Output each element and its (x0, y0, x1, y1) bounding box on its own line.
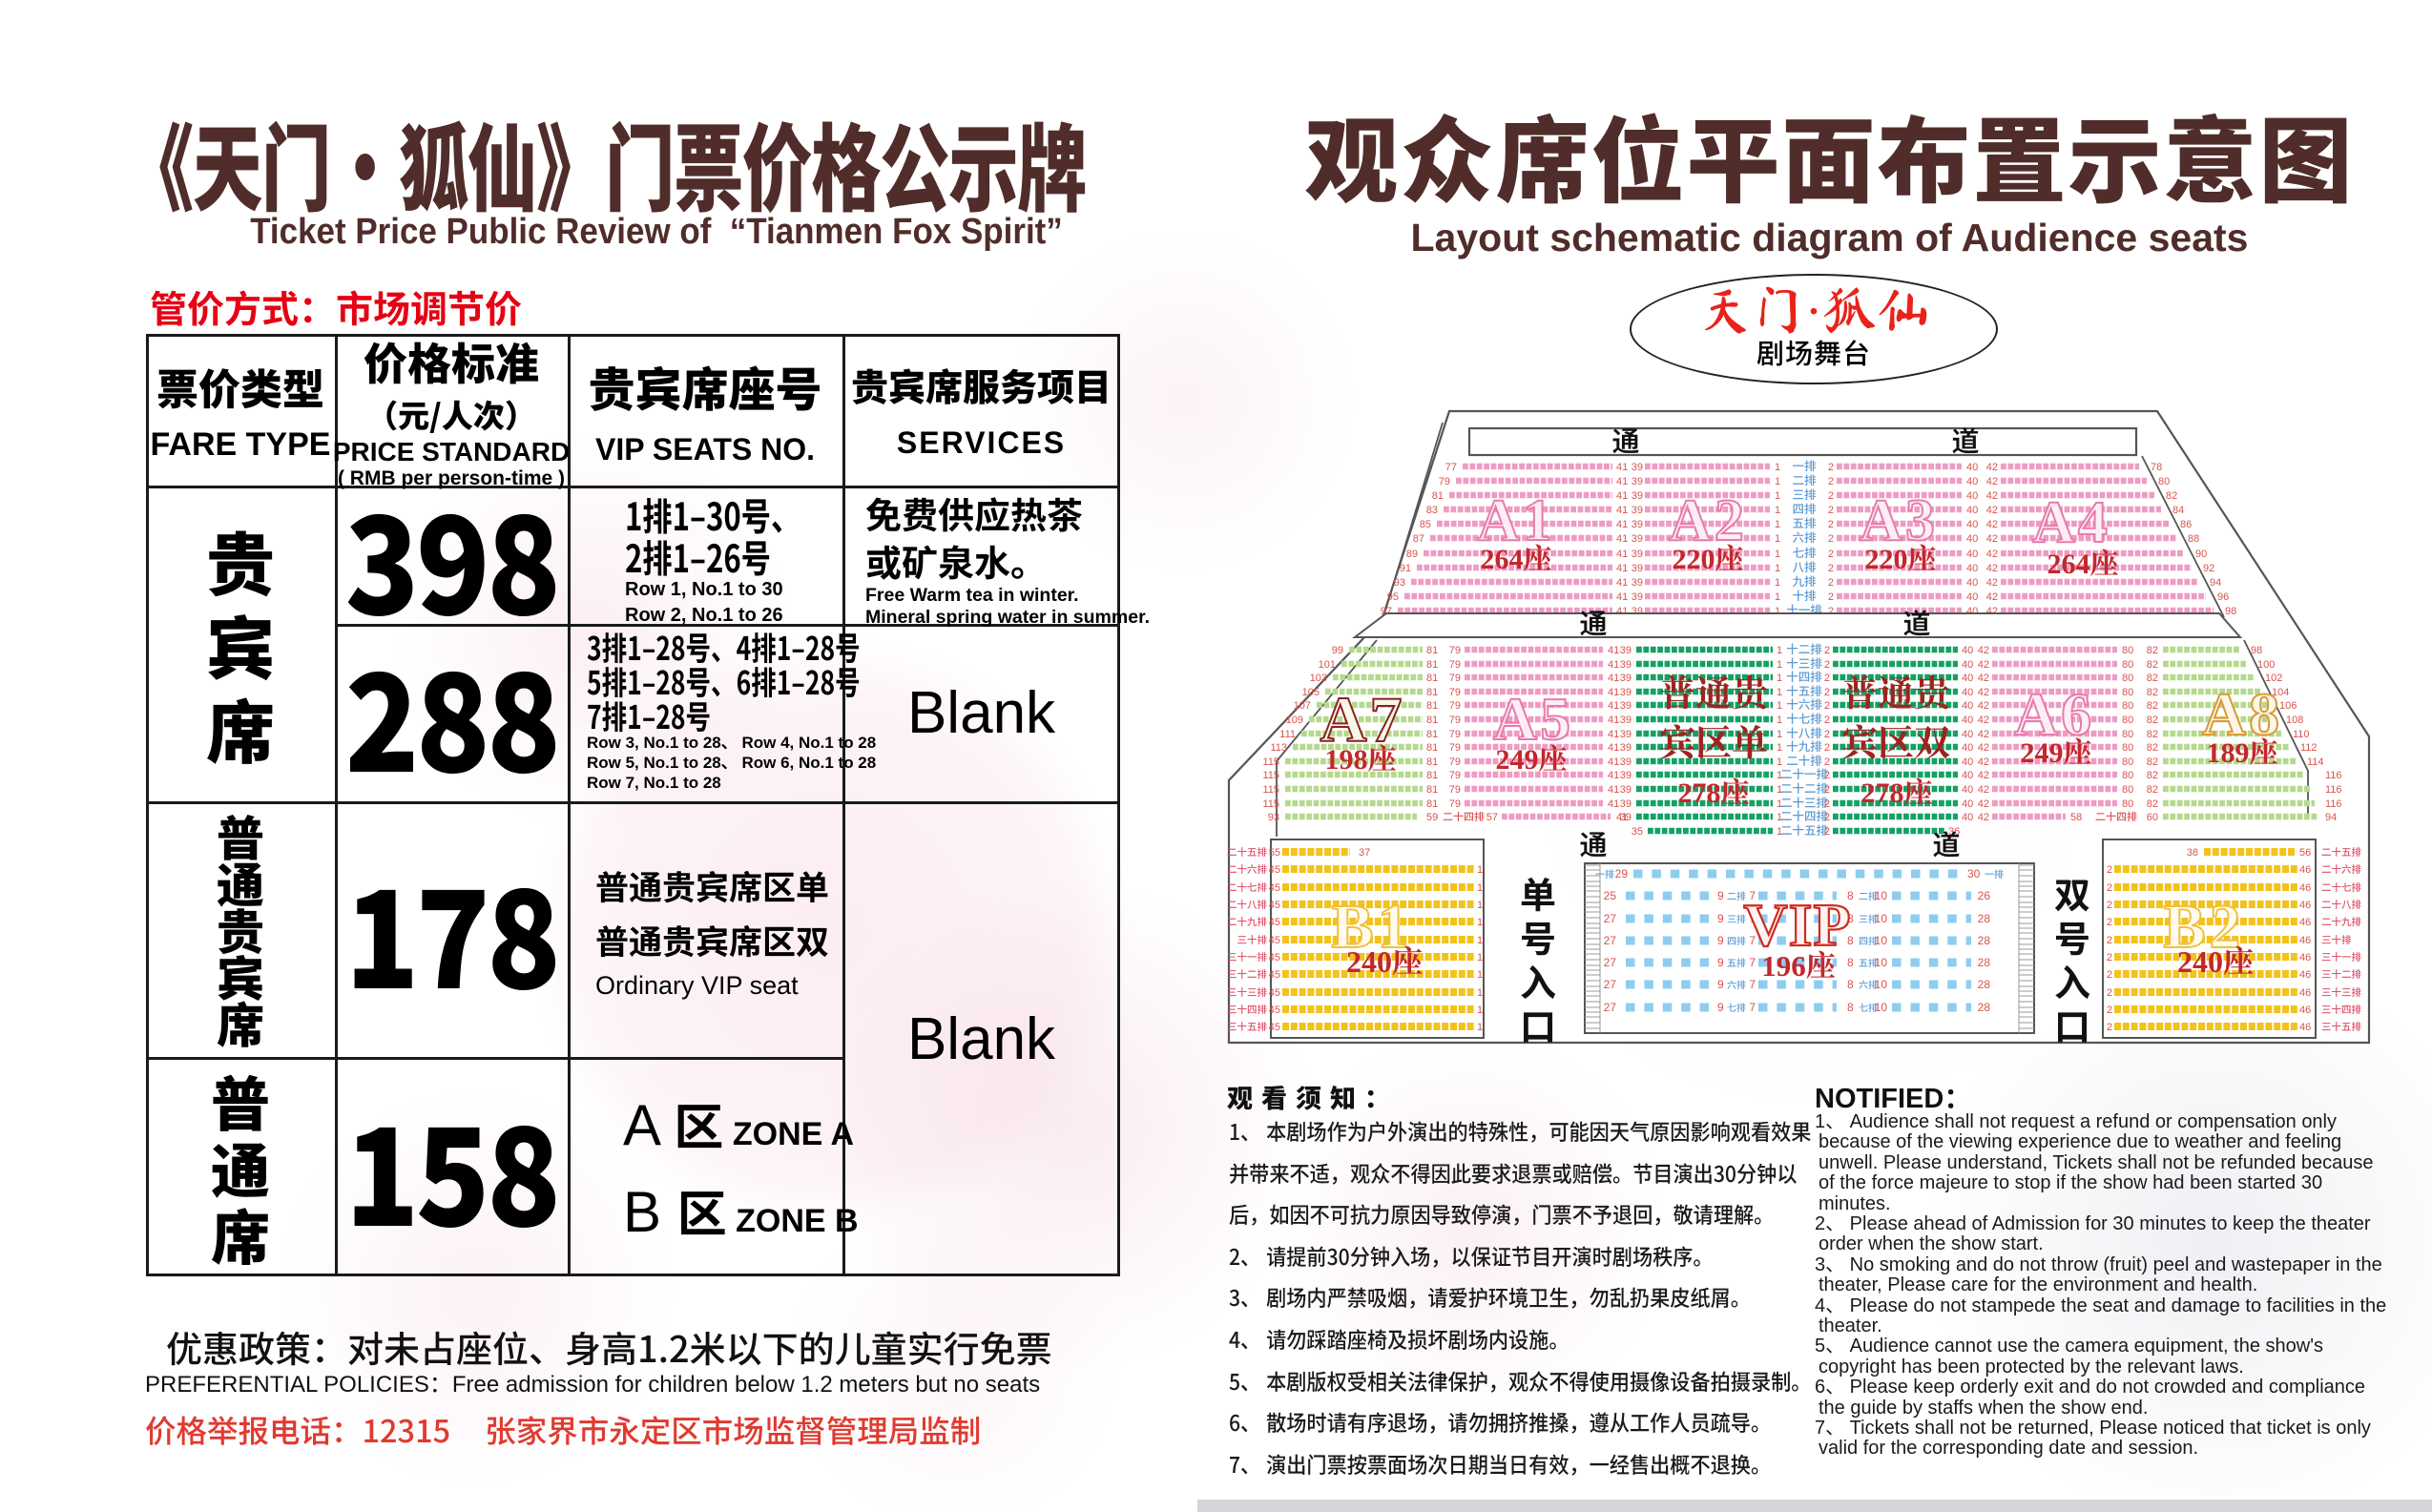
svg-text:99: 99 (1332, 645, 1343, 656)
svg-text:45: 45 (1269, 864, 1280, 876)
svg-text:1: 1 (1775, 533, 1780, 545)
svg-text:79: 79 (1449, 770, 1461, 781)
svg-text:77: 77 (1445, 462, 1457, 473)
svg-text:82: 82 (2147, 700, 2158, 712)
svg-text:42: 42 (1978, 812, 1989, 823)
svg-text:一排: 一排 (1595, 866, 1614, 880)
svg-text:2: 2 (2107, 952, 2112, 963)
svg-text:1: 1 (1477, 969, 1483, 981)
svg-text:46: 46 (2299, 969, 2311, 981)
svg-text:2: 2 (2107, 917, 2112, 928)
svg-text:42: 42 (1986, 563, 1998, 574)
svg-text:109: 109 (1286, 715, 1303, 726)
svg-text:82: 82 (2147, 770, 2158, 781)
svg-text:39: 39 (1632, 476, 1643, 487)
svg-text:10: 10 (1875, 978, 1888, 991)
svg-text:111: 111 (1279, 729, 1296, 740)
svg-text:10: 10 (1875, 934, 1888, 947)
svg-text:39: 39 (1632, 533, 1643, 545)
svg-text:79: 79 (1449, 673, 1461, 684)
svg-text:2: 2 (1824, 700, 1830, 712)
svg-text:1: 1 (1477, 917, 1483, 928)
svg-text:240座: 240座 (2177, 944, 2254, 979)
svg-text:42: 42 (1986, 490, 1998, 502)
svg-text:39: 39 (1620, 715, 1632, 726)
svg-text:42: 42 (1986, 577, 1998, 589)
svg-text:28: 28 (1978, 934, 1991, 947)
svg-text:1: 1 (1777, 700, 1782, 712)
svg-text:81: 81 (1432, 490, 1444, 502)
svg-text:三十排: 三十排 (1237, 933, 1268, 947)
svg-text:82: 82 (2147, 742, 2158, 754)
svg-text:42: 42 (1978, 798, 1989, 810)
svg-text:1: 1 (1775, 591, 1780, 603)
svg-text:二十八排: 二十八排 (1227, 898, 1267, 912)
svg-text:81: 81 (1426, 798, 1438, 810)
svg-text:80: 80 (2122, 659, 2133, 671)
svg-text:2: 2 (2107, 1022, 2112, 1033)
svg-text:115: 115 (1262, 798, 1279, 810)
svg-text:39: 39 (1632, 462, 1643, 473)
svg-text:45: 45 (1269, 917, 1280, 928)
svg-text:1: 1 (1777, 742, 1782, 754)
svg-text:39: 39 (1620, 756, 1632, 768)
svg-text:82: 82 (2147, 715, 2158, 726)
svg-text:45: 45 (1269, 935, 1280, 946)
svg-text:41: 41 (1608, 729, 1619, 740)
svg-text:46: 46 (2299, 1022, 2311, 1033)
svg-text:40: 40 (1962, 687, 1973, 698)
svg-text:1: 1 (1477, 987, 1483, 999)
svg-text:三十排: 三十排 (2321, 933, 2352, 947)
svg-text:46: 46 (2299, 987, 2311, 999)
svg-text:83: 83 (1426, 505, 1438, 516)
svg-text:82: 82 (2147, 729, 2158, 740)
svg-text:42: 42 (1978, 673, 1989, 684)
svg-text:2: 2 (1824, 687, 1830, 698)
svg-text:249座: 249座 (2021, 737, 2092, 769)
svg-text:39: 39 (1620, 700, 1632, 712)
svg-text:100: 100 (2257, 659, 2275, 671)
svg-text:42: 42 (1986, 591, 1998, 603)
svg-text:40: 40 (1966, 533, 1978, 545)
svg-text:1: 1 (1477, 900, 1483, 911)
svg-text:41: 41 (1608, 659, 1619, 671)
svg-text:220座: 220座 (1673, 544, 1744, 575)
svg-text:249座: 249座 (1496, 744, 1568, 776)
svg-text:41: 41 (1616, 519, 1628, 530)
svg-text:40: 40 (1962, 756, 1973, 768)
svg-text:通: 通 (1579, 823, 1607, 863)
svg-text:39: 39 (1620, 798, 1632, 810)
svg-text:89: 89 (1406, 549, 1418, 560)
svg-text:56: 56 (2299, 847, 2311, 859)
svg-text:三十一排: 三十一排 (1227, 950, 1267, 964)
svg-text:1: 1 (1777, 673, 1782, 684)
svg-text:45: 45 (1269, 987, 1280, 999)
svg-text:198座: 198座 (1325, 744, 1397, 776)
svg-text:8: 8 (1847, 1001, 1854, 1014)
svg-text:41: 41 (1608, 673, 1619, 684)
svg-text:二十八排: 二十八排 (2321, 898, 2361, 912)
svg-text:81: 81 (1426, 756, 1438, 768)
svg-text:79: 79 (1449, 700, 1461, 712)
svg-text:40: 40 (1966, 563, 1978, 574)
svg-text:2: 2 (1828, 476, 1834, 487)
svg-text:101: 101 (1319, 659, 1336, 671)
svg-text:80: 80 (2122, 673, 2133, 684)
svg-text:80: 80 (2158, 476, 2170, 487)
svg-text:79: 79 (1449, 659, 1461, 671)
svg-text:40: 40 (1966, 462, 1978, 473)
svg-text:宾区双: 宾区双 (1841, 714, 1950, 766)
svg-text:278座: 278座 (1678, 777, 1750, 809)
svg-text:27: 27 (1604, 978, 1617, 991)
svg-text:80: 80 (2122, 742, 2133, 754)
svg-text:41: 41 (1608, 687, 1619, 698)
svg-text:112: 112 (2300, 742, 2318, 754)
svg-text:六排: 六排 (1727, 977, 1746, 991)
svg-text:107: 107 (1294, 700, 1311, 712)
svg-text:1: 1 (1477, 864, 1483, 876)
svg-text:道: 道 (1902, 602, 1930, 642)
svg-text:79: 79 (1449, 687, 1461, 698)
svg-text:1: 1 (1775, 505, 1780, 516)
svg-text:1: 1 (1775, 519, 1780, 530)
svg-text:三十三排: 三十三排 (1227, 985, 1267, 1000)
svg-text:39: 39 (1620, 812, 1632, 823)
svg-text:9: 9 (1717, 1001, 1724, 1014)
svg-text:81: 81 (1426, 700, 1438, 712)
svg-text:42: 42 (1978, 687, 1989, 698)
svg-text:2: 2 (2107, 987, 2112, 999)
svg-text:46: 46 (2299, 864, 2311, 876)
svg-text:40: 40 (1962, 673, 1973, 684)
svg-text:39: 39 (1632, 591, 1643, 603)
svg-text:86: 86 (2180, 519, 2192, 530)
svg-text:28: 28 (1978, 978, 1991, 991)
svg-text:二十九排: 二十九排 (2321, 915, 2361, 929)
svg-text:88: 88 (2188, 533, 2199, 545)
svg-text:1: 1 (1775, 462, 1780, 473)
svg-text:46: 46 (2299, 917, 2311, 928)
svg-text:27: 27 (1604, 1001, 1617, 1014)
svg-text:二十六排: 二十六排 (2321, 862, 2361, 877)
svg-text:45: 45 (1269, 952, 1280, 963)
svg-text:9: 9 (1717, 912, 1724, 925)
svg-text:A4: A4 (2032, 490, 2110, 555)
svg-text:40: 40 (1962, 798, 1973, 810)
svg-text:30: 30 (1967, 867, 1981, 880)
svg-text:93: 93 (1394, 577, 1405, 589)
svg-text:82: 82 (2147, 798, 2158, 810)
svg-text:2: 2 (1828, 577, 1834, 589)
svg-text:2: 2 (1828, 549, 1834, 560)
svg-text:三十二排: 三十二排 (1227, 967, 1267, 982)
svg-text:41: 41 (1608, 645, 1619, 656)
svg-text:9: 9 (1717, 978, 1724, 991)
svg-text:189座: 189座 (2207, 737, 2278, 769)
svg-text:9: 9 (1717, 956, 1724, 969)
svg-text:87: 87 (1413, 533, 1424, 545)
svg-text:40: 40 (1962, 729, 1973, 740)
svg-text:27: 27 (1604, 934, 1617, 947)
svg-text:40: 40 (1966, 591, 1978, 603)
svg-text:39: 39 (1620, 659, 1632, 671)
svg-text:10: 10 (1875, 912, 1888, 925)
svg-text:79: 79 (1449, 784, 1461, 796)
svg-text:2: 2 (1824, 812, 1830, 823)
svg-text:通: 通 (1611, 420, 1639, 460)
svg-text:98: 98 (2251, 645, 2262, 656)
svg-text:40: 40 (1966, 549, 1978, 560)
svg-text:41: 41 (1608, 798, 1619, 810)
svg-text:42: 42 (1986, 549, 1998, 560)
svg-text:42: 42 (1978, 659, 1989, 671)
svg-text:40: 40 (1962, 812, 1973, 823)
svg-text:一排: 一排 (1985, 866, 2004, 880)
svg-text:46: 46 (2299, 900, 2311, 911)
svg-text:39: 39 (1632, 519, 1643, 530)
svg-text:42: 42 (1978, 756, 1989, 768)
svg-text:2: 2 (1828, 505, 1834, 516)
svg-text:二十五排: 二十五排 (1780, 820, 1829, 839)
svg-text:2: 2 (1824, 673, 1830, 684)
svg-text:110: 110 (2293, 729, 2310, 740)
svg-text:41: 41 (1616, 505, 1628, 516)
svg-text:81: 81 (1426, 729, 1438, 740)
svg-text:41: 41 (1616, 577, 1628, 589)
svg-text:2: 2 (1824, 770, 1830, 781)
svg-text:41: 41 (1608, 742, 1619, 754)
svg-text:25: 25 (1604, 889, 1617, 902)
svg-text:81: 81 (1426, 715, 1438, 726)
svg-text:口: 口 (1520, 998, 1556, 1050)
svg-text:10: 10 (1875, 956, 1888, 969)
svg-text:41: 41 (1608, 756, 1619, 768)
svg-text:41: 41 (1616, 549, 1628, 560)
svg-text:98: 98 (2225, 606, 2236, 617)
svg-text:二十四排: 二十四排 (2095, 809, 2137, 824)
svg-text:82: 82 (2147, 673, 2158, 684)
svg-text:115: 115 (1262, 784, 1279, 796)
svg-text:39: 39 (1632, 577, 1643, 589)
svg-text:39: 39 (1632, 490, 1643, 502)
svg-text:46: 46 (2299, 1005, 2311, 1016)
svg-text:95: 95 (1387, 591, 1399, 603)
svg-text:口: 口 (2054, 998, 2090, 1050)
svg-text:41: 41 (1608, 700, 1619, 712)
svg-text:40: 40 (1962, 659, 1973, 671)
svg-text:93: 93 (1268, 812, 1279, 823)
svg-text:42: 42 (1986, 462, 1998, 473)
svg-text:42: 42 (1986, 505, 1998, 516)
svg-text:1: 1 (1777, 729, 1782, 740)
svg-text:82: 82 (2147, 756, 2158, 768)
svg-text:42: 42 (1986, 519, 1998, 530)
svg-text:40: 40 (1966, 505, 1978, 516)
svg-text:264座: 264座 (2047, 549, 2119, 580)
svg-text:40: 40 (1962, 645, 1973, 656)
svg-text:2: 2 (2107, 864, 2112, 876)
svg-text:1: 1 (1775, 577, 1780, 589)
svg-text:45: 45 (1269, 900, 1280, 911)
svg-text:39: 39 (1620, 645, 1632, 656)
svg-text:宾区单: 宾区单 (1659, 714, 1768, 766)
svg-text:82: 82 (2147, 659, 2158, 671)
svg-text:1: 1 (1777, 715, 1782, 726)
svg-text:28: 28 (1978, 912, 1991, 925)
svg-text:81: 81 (1426, 742, 1438, 754)
svg-text:80: 80 (2122, 700, 2133, 712)
svg-text:41: 41 (1616, 533, 1628, 545)
svg-text:39: 39 (1620, 742, 1632, 754)
svg-text:264座: 264座 (1481, 544, 1552, 575)
svg-text:40: 40 (1966, 577, 1978, 589)
svg-text:1: 1 (1777, 687, 1782, 698)
svg-text:94: 94 (2210, 577, 2221, 589)
svg-text:2: 2 (1824, 756, 1830, 768)
svg-text:40: 40 (1966, 476, 1978, 487)
svg-text:80: 80 (2122, 687, 2133, 698)
svg-text:2: 2 (1824, 798, 1830, 810)
svg-text:39: 39 (1632, 505, 1643, 516)
svg-text:27: 27 (1604, 912, 1617, 925)
svg-text:42: 42 (1986, 533, 1998, 545)
svg-text:82: 82 (2147, 645, 2158, 656)
svg-text:82: 82 (2147, 687, 2158, 698)
svg-text:A5: A5 (1493, 685, 1573, 753)
svg-text:39: 39 (1632, 563, 1643, 574)
svg-text:1: 1 (1477, 1005, 1483, 1016)
svg-text:2: 2 (1824, 729, 1830, 740)
svg-text:46: 46 (2299, 952, 2311, 963)
svg-text:40: 40 (1966, 519, 1978, 530)
svg-text:2: 2 (1828, 591, 1834, 603)
svg-text:38: 38 (2187, 847, 2198, 859)
svg-text:普通贵: 普通贵 (1659, 664, 1768, 716)
svg-text:45: 45 (1269, 1005, 1280, 1016)
svg-text:39: 39 (1620, 784, 1632, 796)
svg-text:1: 1 (1775, 476, 1780, 487)
svg-text:9: 9 (1717, 934, 1724, 947)
svg-text:113: 113 (1270, 742, 1287, 754)
svg-text:2: 2 (1828, 519, 1834, 530)
svg-text:45: 45 (1269, 1022, 1280, 1033)
svg-text:80: 80 (2122, 756, 2133, 768)
svg-text:42: 42 (1978, 742, 1989, 754)
svg-text:196座: 196座 (1761, 949, 1836, 983)
svg-text:92: 92 (2203, 563, 2214, 574)
svg-text:8: 8 (1847, 978, 1854, 991)
svg-text:80: 80 (2122, 729, 2133, 740)
svg-text:1: 1 (1775, 490, 1780, 502)
svg-text:三十五排: 三十五排 (2321, 1020, 2361, 1034)
svg-text:26: 26 (1978, 889, 1991, 902)
svg-text:二十六排: 二十六排 (1227, 862, 1267, 877)
svg-text:道: 道 (1951, 420, 1979, 460)
svg-text:10: 10 (1875, 1001, 1888, 1014)
svg-text:2: 2 (1824, 645, 1830, 656)
svg-text:42: 42 (1978, 784, 1989, 796)
svg-text:82: 82 (2166, 490, 2177, 502)
svg-text:39: 39 (1632, 549, 1643, 560)
svg-text:二十五排: 二十五排 (2321, 845, 2361, 860)
svg-text:220座: 220座 (1865, 544, 1937, 575)
svg-text:91: 91 (1400, 563, 1411, 574)
svg-text:28: 28 (1978, 956, 1991, 969)
svg-text:2: 2 (1824, 784, 1830, 796)
svg-text:79: 79 (1449, 742, 1461, 754)
svg-text:42: 42 (1978, 729, 1989, 740)
svg-text:1: 1 (1477, 1022, 1483, 1033)
svg-text:85: 85 (1420, 519, 1431, 530)
svg-text:80: 80 (2122, 784, 2133, 796)
svg-text:9: 9 (1717, 889, 1724, 902)
svg-text:2: 2 (1828, 490, 1834, 502)
svg-text:普通贵: 普通贵 (1841, 664, 1950, 716)
svg-text:40: 40 (1962, 770, 1973, 781)
svg-text:81: 81 (1426, 784, 1438, 796)
svg-text:2: 2 (2107, 882, 2112, 894)
svg-text:240座: 240座 (1346, 944, 1423, 979)
svg-text:三十二排: 三十二排 (2321, 967, 2361, 982)
svg-text:84: 84 (2172, 505, 2184, 516)
svg-text:2: 2 (1824, 742, 1830, 754)
svg-text:2: 2 (2107, 900, 2112, 911)
svg-text:116: 116 (2325, 770, 2342, 781)
svg-text:1: 1 (1477, 952, 1483, 963)
svg-text:96: 96 (2217, 591, 2229, 603)
svg-text:42: 42 (1978, 715, 1989, 726)
svg-text:42: 42 (1986, 476, 1998, 487)
svg-text:45: 45 (1269, 969, 1280, 981)
svg-text:80: 80 (2122, 770, 2133, 781)
svg-text:115: 115 (1262, 770, 1279, 781)
svg-text:40: 40 (1966, 490, 1978, 502)
svg-text:80: 80 (2122, 645, 2133, 656)
svg-text:90: 90 (2195, 549, 2207, 560)
svg-text:81: 81 (1426, 645, 1438, 656)
svg-text:41: 41 (1616, 462, 1628, 473)
svg-text:39: 39 (1620, 673, 1632, 684)
svg-text:80: 80 (2122, 715, 2133, 726)
svg-text:2: 2 (1828, 563, 1834, 574)
svg-text:七排: 七排 (1727, 1000, 1746, 1014)
svg-text:1: 1 (1775, 563, 1780, 574)
svg-text:116: 116 (2325, 784, 2342, 796)
svg-text:79: 79 (1449, 756, 1461, 768)
svg-text:1: 1 (1477, 882, 1483, 894)
svg-text:2: 2 (1824, 715, 1830, 726)
svg-text:41: 41 (1608, 770, 1619, 781)
svg-text:81: 81 (1426, 659, 1438, 671)
svg-text:81: 81 (1426, 770, 1438, 781)
svg-text:1: 1 (1777, 659, 1782, 671)
svg-text:三十四排: 三十四排 (1227, 1003, 1267, 1017)
svg-text:41: 41 (1608, 784, 1619, 796)
svg-text:7: 7 (1749, 1001, 1756, 1014)
svg-text:55: 55 (1269, 847, 1280, 859)
svg-text:41: 41 (1616, 476, 1628, 487)
svg-text:二十七排: 二十七排 (2321, 880, 2361, 895)
svg-text:2: 2 (2107, 935, 2112, 946)
svg-text:三十四排: 三十四排 (2321, 1003, 2361, 1017)
svg-text:1: 1 (1777, 645, 1782, 656)
svg-text:40: 40 (1962, 784, 1973, 796)
svg-text:通: 通 (1579, 602, 1607, 642)
svg-text:116: 116 (2325, 798, 2342, 810)
